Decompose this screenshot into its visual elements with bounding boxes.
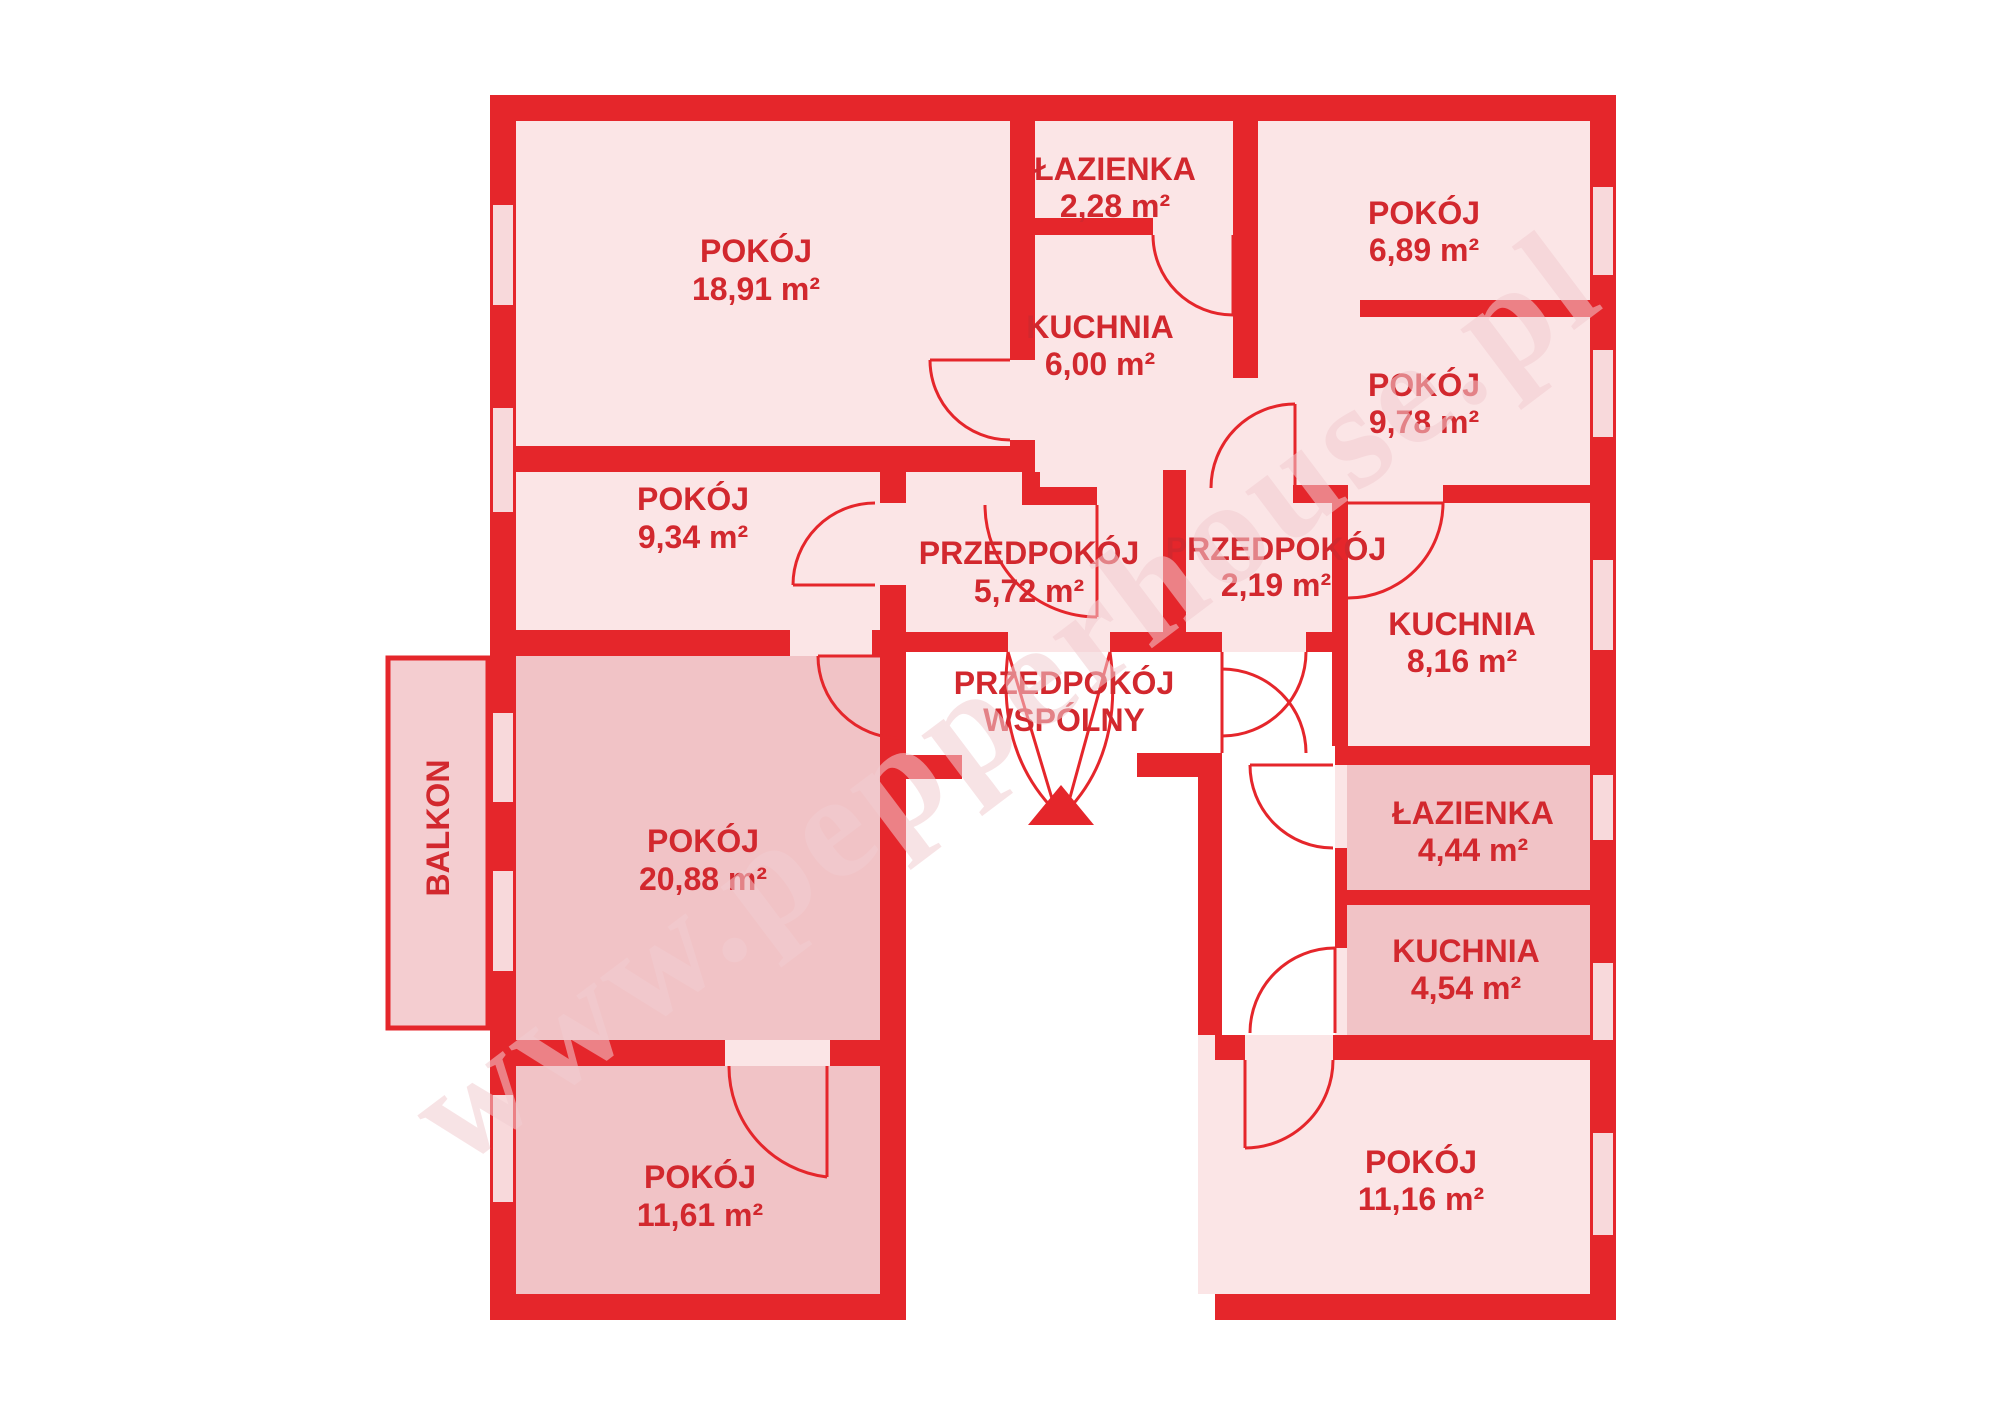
room-label-kuchnia-8-16: KUCHNIA xyxy=(1388,606,1536,642)
window xyxy=(1593,1133,1613,1235)
wall-segment xyxy=(1335,746,1590,765)
window xyxy=(493,408,513,512)
wall-segment xyxy=(1010,440,1035,472)
wall-segment xyxy=(1335,848,1347,890)
wall-segment xyxy=(490,1294,906,1320)
wall-segment xyxy=(1215,1294,1616,1320)
floor-plan-svg: POKÓJ 18,91 m² POKÓJ 9,34 m² POKÓJ 20,88… xyxy=(0,0,2000,1416)
wall-segment xyxy=(1022,472,1040,505)
wall-segment xyxy=(1233,95,1258,378)
wall-segment xyxy=(1306,632,1335,652)
wall-segment xyxy=(490,630,790,656)
room-area-kuchnia-8-16: 8,16 m² xyxy=(1407,643,1517,679)
wall-segment xyxy=(1198,753,1222,1035)
window xyxy=(493,205,513,305)
room-area-pokoj-9-34: 9,34 m² xyxy=(638,519,748,555)
balcony-window xyxy=(493,871,513,971)
room-area-lazienka-2-28: 2,28 m² xyxy=(1060,188,1170,224)
wall-segment xyxy=(1137,753,1220,777)
window xyxy=(1593,560,1613,650)
room-area-pokoj-18-91: 18,91 m² xyxy=(692,271,820,307)
room-label-pokoj-9-34: POKÓJ xyxy=(637,481,749,517)
room-label-pokoj-11-61: POKÓJ xyxy=(644,1159,756,1195)
room-area-lazienka-4-44: 4,44 m² xyxy=(1418,832,1528,868)
room-label-pokoj-6-89: POKÓJ xyxy=(1368,195,1480,231)
room-label-kuchnia-6-00: KUCHNIA xyxy=(1026,309,1174,345)
wall-segment xyxy=(880,472,906,503)
room-area-pokoj-11-16: 11,16 m² xyxy=(1358,1181,1484,1217)
wall-segment xyxy=(1335,905,1347,948)
room-area-kuchnia-6-00: 6,00 m² xyxy=(1045,346,1155,382)
room-area-kuchnia-4-54: 4,54 m² xyxy=(1411,970,1521,1006)
room-label-kuchnia-4-54: KUCHNIA xyxy=(1392,933,1540,969)
wall-segment xyxy=(490,446,1035,472)
side-corridor xyxy=(1222,652,1335,1035)
wall-segment xyxy=(490,95,1616,121)
wall-segment xyxy=(1035,487,1097,505)
wall-segment xyxy=(1335,890,1590,905)
balcony-door-window xyxy=(493,713,513,802)
wall-segment xyxy=(1443,485,1590,503)
hallway-connector xyxy=(1198,652,1222,753)
window xyxy=(1593,775,1613,840)
balcony-label: BALKON xyxy=(420,760,456,897)
floor-plan-page: POKÓJ 18,91 m² POKÓJ 9,34 m² POKÓJ 20,88… xyxy=(0,0,2000,1416)
room-label-pokoj-18-91: POKÓJ xyxy=(700,233,812,269)
wall-segment xyxy=(1333,1035,1590,1060)
room-label-pokoj-11-16: POKÓJ xyxy=(1365,1144,1477,1180)
window xyxy=(1593,963,1613,1040)
room-label-lazienka-4-44: ŁAZIENKA xyxy=(1392,795,1554,831)
room-area-pokoj-11-61: 11,61 m² xyxy=(637,1197,763,1233)
window xyxy=(1593,187,1613,275)
wall-segment xyxy=(1215,1035,1245,1060)
window xyxy=(1593,350,1613,437)
room-label-lazienka-2-28: ŁAZIENKA xyxy=(1034,151,1196,187)
